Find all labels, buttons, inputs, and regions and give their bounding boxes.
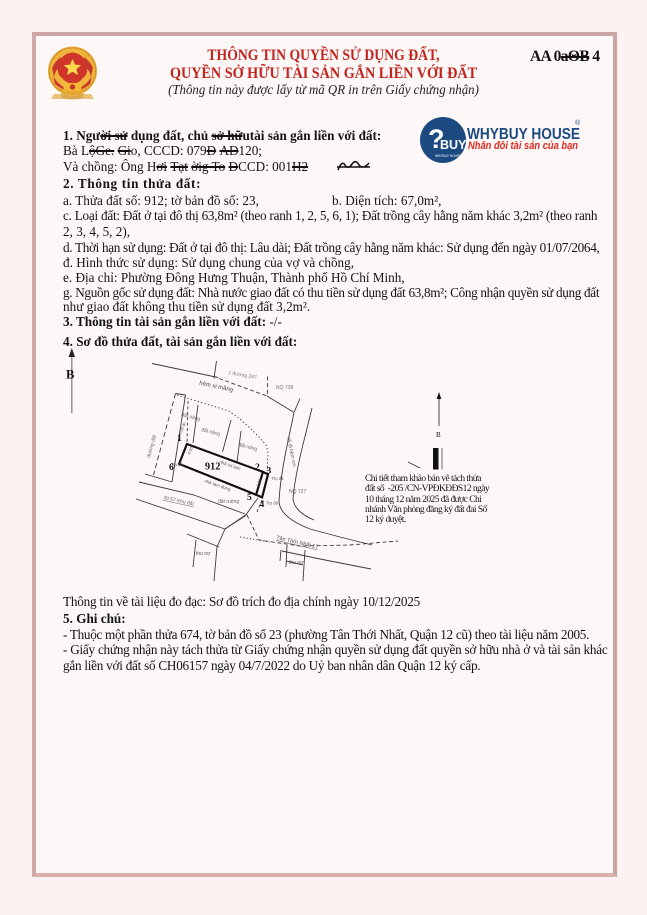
svg-text:đất nâng: đất nâng (181, 412, 202, 423)
svg-text:NQ 738: NQ 738 (276, 385, 293, 391)
svg-text:4: 4 (260, 500, 265, 510)
svg-text:Trụ đá: Trụ đá (272, 476, 285, 481)
svg-text:4.00 đo: 4.00 đo (177, 420, 187, 435)
svg-text:thu nợ: thu nợ (289, 560, 304, 566)
svg-text:B: B (436, 431, 441, 439)
svg-text:30 57 Khu đất: 30 57 Khu đất (163, 495, 195, 507)
svg-text:3: 3 (267, 467, 272, 477)
svg-text:đất ruộng: đất ruộng (218, 499, 239, 505)
svg-text:5: 5 (247, 493, 252, 503)
svg-text:®: ® (575, 119, 581, 127)
svg-text:BUY: BUY (440, 138, 467, 152)
svg-text:thu nợ: thu nợ (196, 551, 211, 557)
svg-text:Tân Thới Nhất 17: Tân Thới Nhất 17 (276, 535, 319, 551)
svg-text:Trụ đá: Trụ đá (171, 462, 184, 467)
svg-text:2: 2 (255, 463, 260, 473)
svg-text:lối đi hẻm xm: lối đi hẻm xm (285, 437, 297, 467)
svg-text:B: B (66, 368, 74, 382)
svg-text:đất nâng: đất nâng (238, 442, 259, 453)
svg-text:hẻm xi măng: hẻm xi măng (199, 381, 234, 394)
svg-text:1 đường 297: 1 đường 297 (228, 370, 258, 381)
svg-text:WHYBUY HOUSE: WHYBUY HOUSE (435, 154, 461, 158)
svg-text:đường đất: đường đất (146, 434, 158, 459)
svg-text:Nhân đôi tài sản của bạn: Nhân đôi tài sản của bạn (468, 140, 578, 152)
svg-text:đất nâng: đất nâng (201, 427, 222, 438)
svg-text:NQ 727: NQ 727 (289, 489, 306, 495)
svg-text:Trụ đá: Trụ đá (266, 501, 279, 506)
